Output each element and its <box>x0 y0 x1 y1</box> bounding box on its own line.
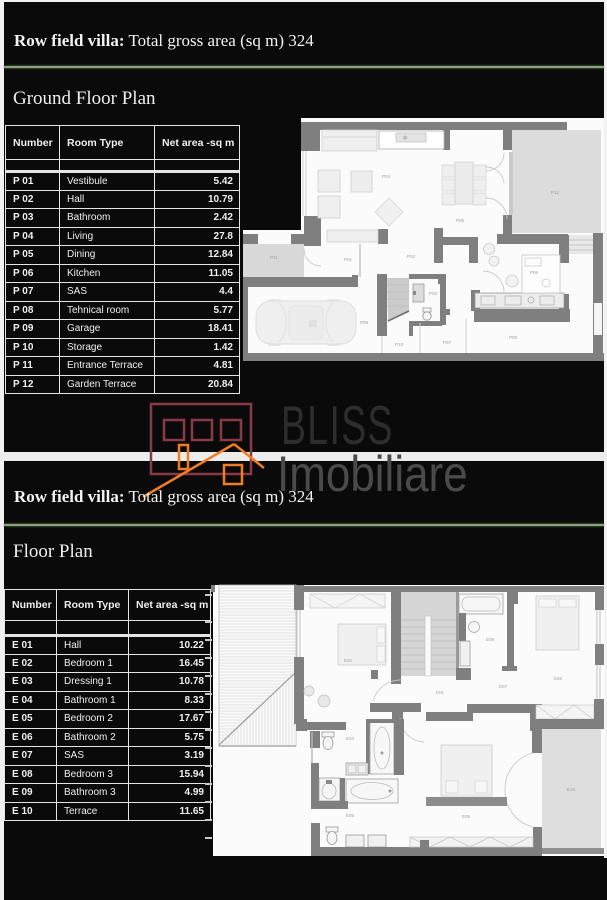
svg-text:E08: E08 <box>554 676 563 681</box>
svg-text:P06: P06 <box>530 270 539 275</box>
svg-text:P02: P02 <box>407 254 416 259</box>
svg-text:P09: P09 <box>360 320 369 325</box>
svg-text:E06: E06 <box>346 813 355 818</box>
svg-text:E10: E10 <box>567 787 576 792</box>
svg-text:P12: P12 <box>551 190 560 195</box>
svg-text:P03: P03 <box>429 291 438 296</box>
svg-text:E04: E04 <box>346 736 355 741</box>
svg-text:E01: E01 <box>436 690 445 695</box>
svg-text:P05: P05 <box>456 218 465 223</box>
svg-text:P04: P04 <box>382 174 391 179</box>
svg-text:E07: E07 <box>499 684 508 689</box>
svg-text:P08: P08 <box>509 335 518 340</box>
svg-text:P07: P07 <box>443 340 452 345</box>
svg-text:P10: P10 <box>395 342 404 347</box>
svg-text:E05: E05 <box>462 814 471 819</box>
svg-text:E09: E09 <box>486 637 495 642</box>
svg-text:P01: P01 <box>344 257 353 262</box>
svg-text:E02: E02 <box>344 658 353 663</box>
svg-text:P11: P11 <box>270 255 278 260</box>
